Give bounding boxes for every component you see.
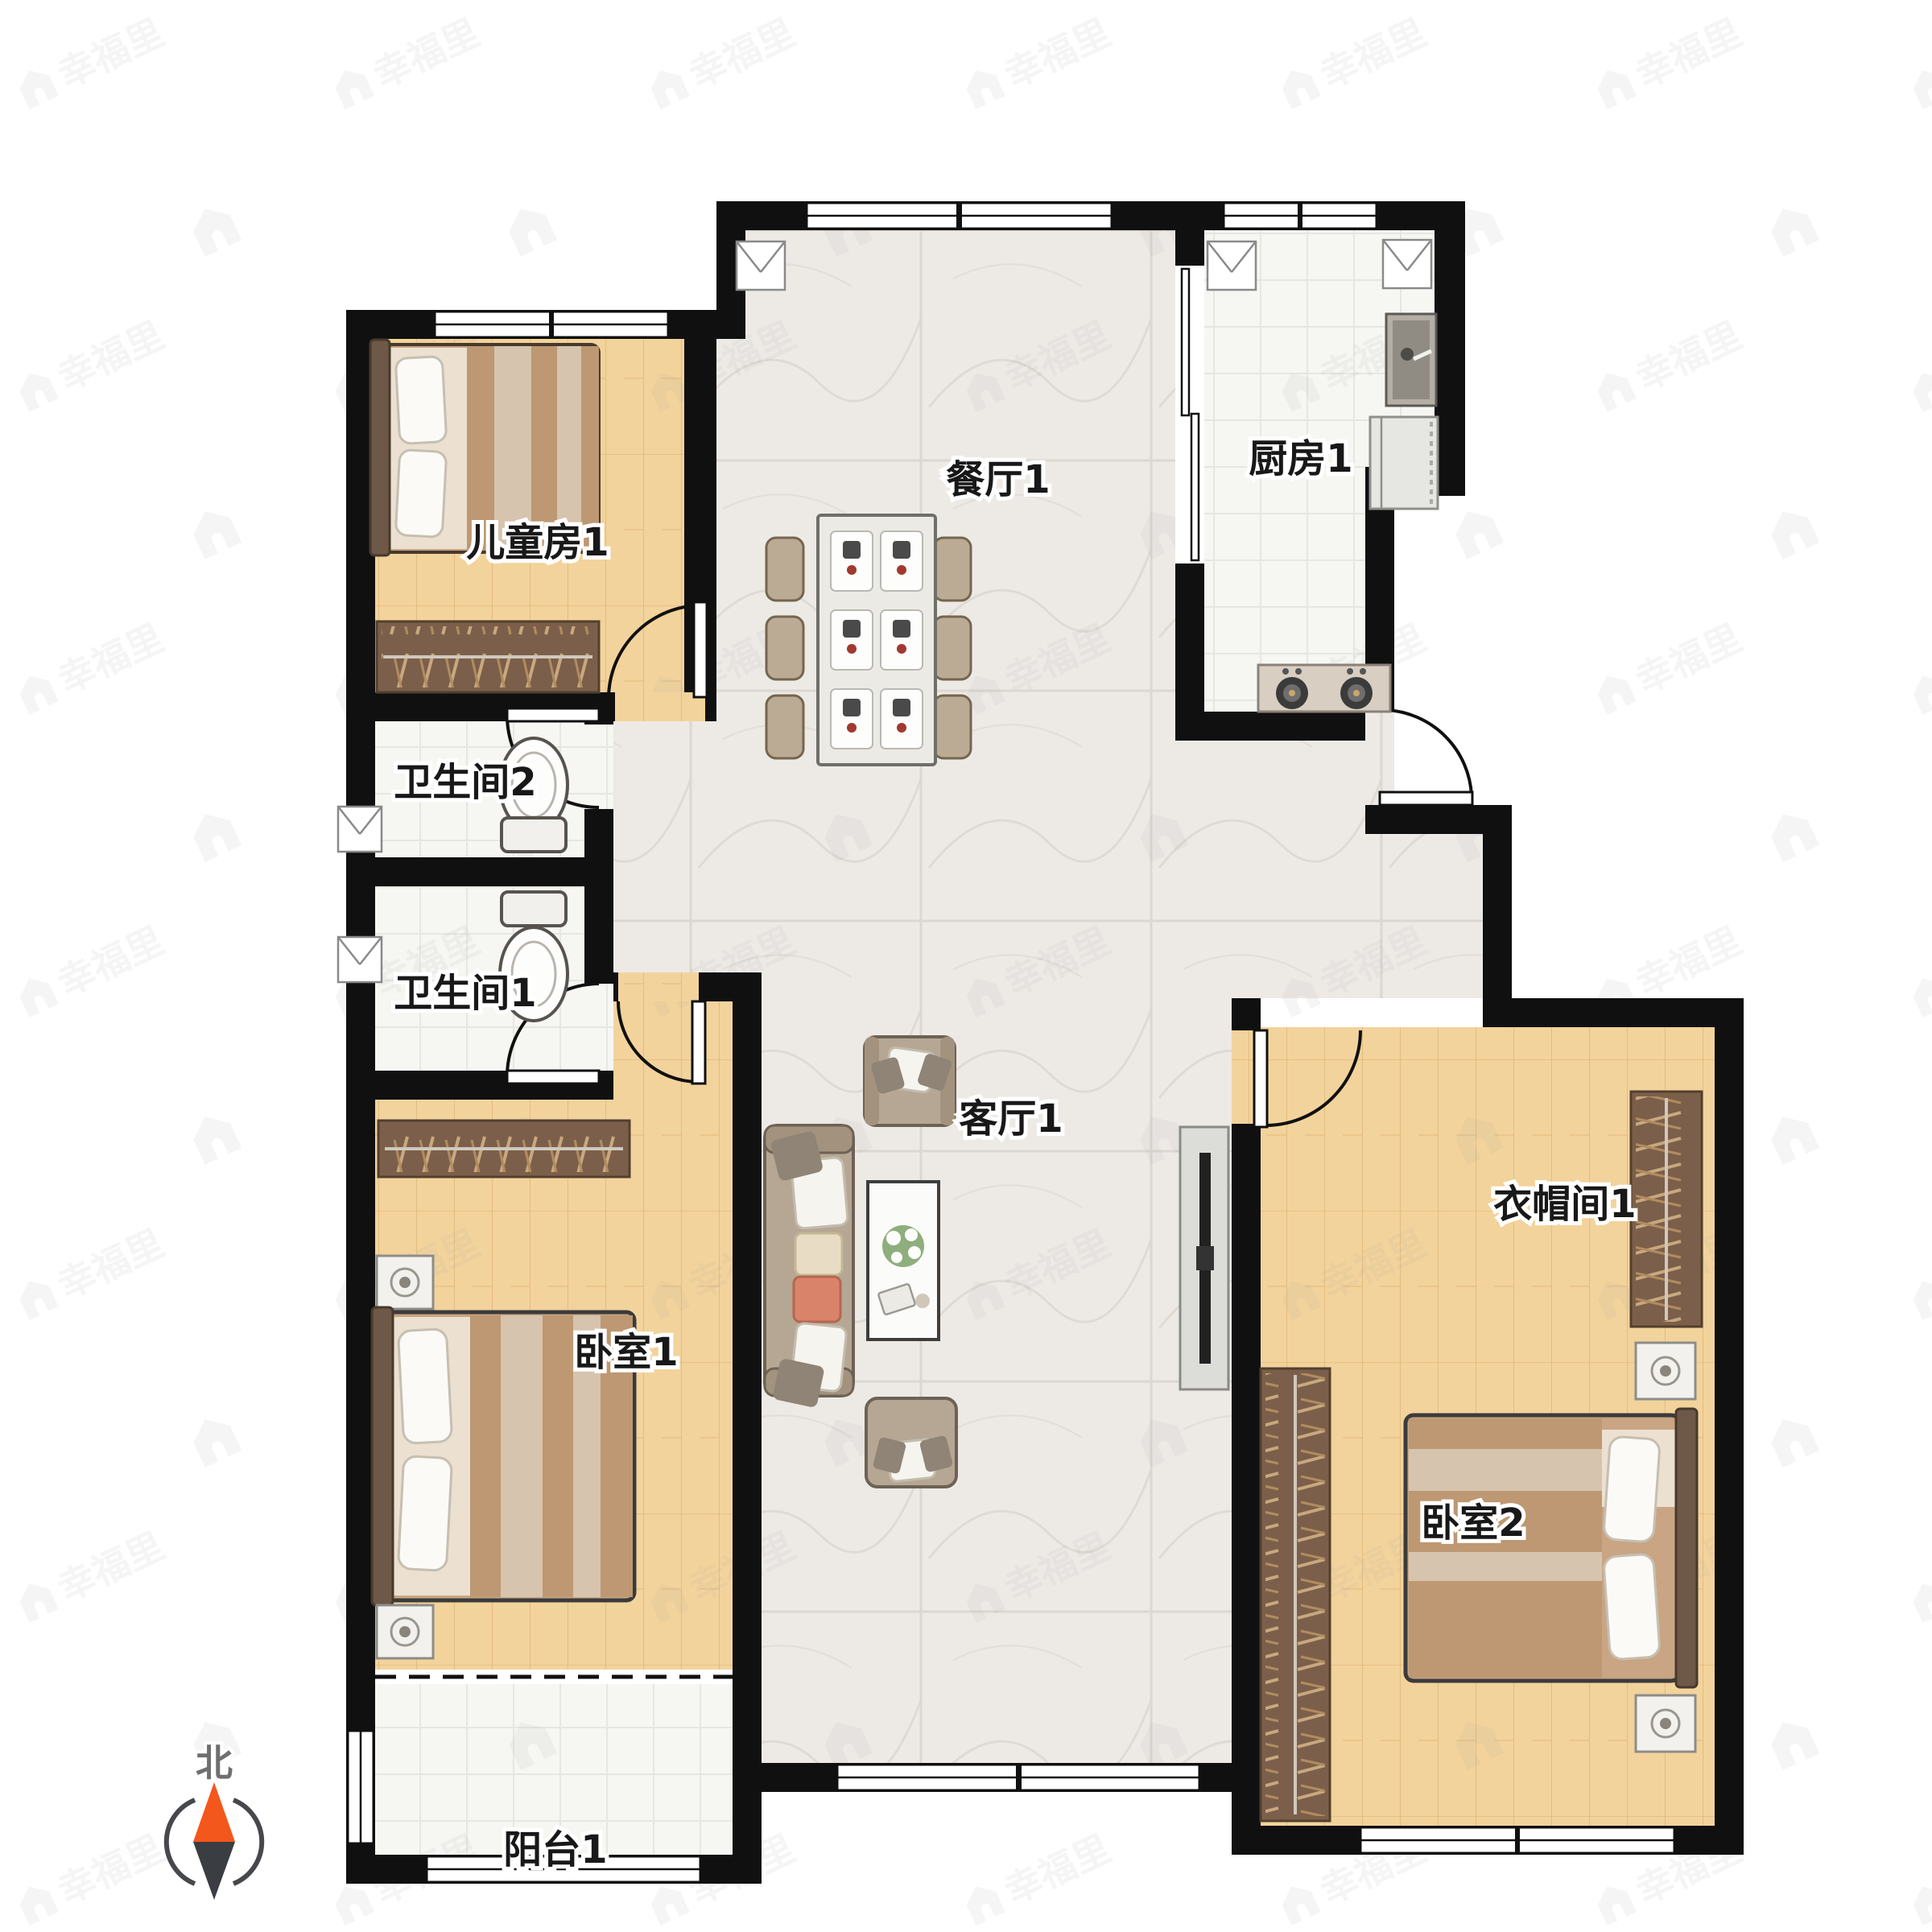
- bedroom1-pillow: [398, 1329, 452, 1444]
- bedroom2-nightstand: [1636, 1343, 1695, 1399]
- bedroom2-nightstand: [1636, 1695, 1695, 1752]
- door-kitchen-sliding: [1175, 266, 1204, 563]
- kitchen-fridge: [1370, 417, 1438, 509]
- dining-chair: [934, 617, 971, 679]
- ac-kitchen-right-icon: [1383, 240, 1431, 288]
- vent-bathroom2-icon: [338, 807, 382, 852]
- bedroom1-nightstand: [377, 1605, 433, 1658]
- floorplan-svg: 幸福里: [0, 0, 1932, 1932]
- label-bathroom2: 卫生间2: [394, 760, 536, 805]
- armchair-top: [865, 1037, 955, 1125]
- tv-stand: [1180, 1127, 1228, 1389]
- bedroom1-nightstand: [377, 1256, 433, 1309]
- children-room-furniture: [370, 340, 599, 692]
- dining-chair: [766, 696, 803, 758]
- kitchen-stove: [1258, 665, 1390, 712]
- label-balcony: 阳台1: [503, 1827, 607, 1872]
- window-bedroom2-bottom: [1360, 1827, 1674, 1853]
- label-cloakroom: 衣帽间1: [1493, 1182, 1636, 1227]
- dining-chair: [766, 617, 803, 679]
- dining-chair: [766, 538, 803, 601]
- label-bathroom1: 卫生间1: [394, 971, 536, 1016]
- children-bed-pillow: [395, 450, 446, 538]
- window-dining-top: [807, 203, 1112, 229]
- label-bedroom1: 卧室1: [574, 1330, 678, 1375]
- sofa: [765, 1125, 853, 1408]
- armchair-bottom: [866, 1398, 956, 1487]
- bedroom2-bed-headboard: [1676, 1409, 1697, 1687]
- window-kitchen-top: [1224, 203, 1377, 229]
- dining-chair: [934, 538, 971, 601]
- label-bedroom2: 卧室2: [1421, 1501, 1525, 1546]
- children-wardrobe: [377, 621, 599, 692]
- window-children-top: [435, 312, 668, 337]
- label-kitchen: 厨房1: [1249, 436, 1352, 481]
- bedroom1-pillow: [398, 1456, 452, 1571]
- label-dining: 餐厅1: [946, 457, 1050, 502]
- floorplan-canvas: 幸福里: [0, 0, 1932, 1932]
- bedroom1-wardrobe: [378, 1121, 630, 1177]
- children-bed-pillow: [395, 357, 446, 444]
- ac-kitchen-left-icon: [1207, 242, 1256, 290]
- bedroom1-bed-headboard: [372, 1307, 393, 1605]
- label-children-room: 儿童房1: [466, 520, 609, 565]
- bedroom2-pillow: [1604, 1554, 1661, 1660]
- bedroom2-pillow: [1604, 1436, 1661, 1542]
- window-balcony-left: [348, 1731, 374, 1843]
- vent-bathroom1-icon: [338, 937, 382, 982]
- coffee-table: [868, 1182, 939, 1340]
- dining-set: [766, 515, 971, 765]
- ac-dining-icon: [737, 242, 785, 290]
- door-balcony-sliding: [375, 1670, 733, 1684]
- cloakroom-wardrobe: [1631, 1092, 1702, 1327]
- children-bed-headboard: [370, 340, 390, 555]
- label-living: 客厅1: [959, 1096, 1063, 1141]
- dining-chair: [934, 696, 971, 758]
- bedroom2-wardrobe: [1261, 1368, 1330, 1821]
- window-living-bottom: [837, 1765, 1199, 1790]
- kitchen-sink: [1386, 314, 1436, 406]
- compass-north-label: 北: [196, 1741, 233, 1785]
